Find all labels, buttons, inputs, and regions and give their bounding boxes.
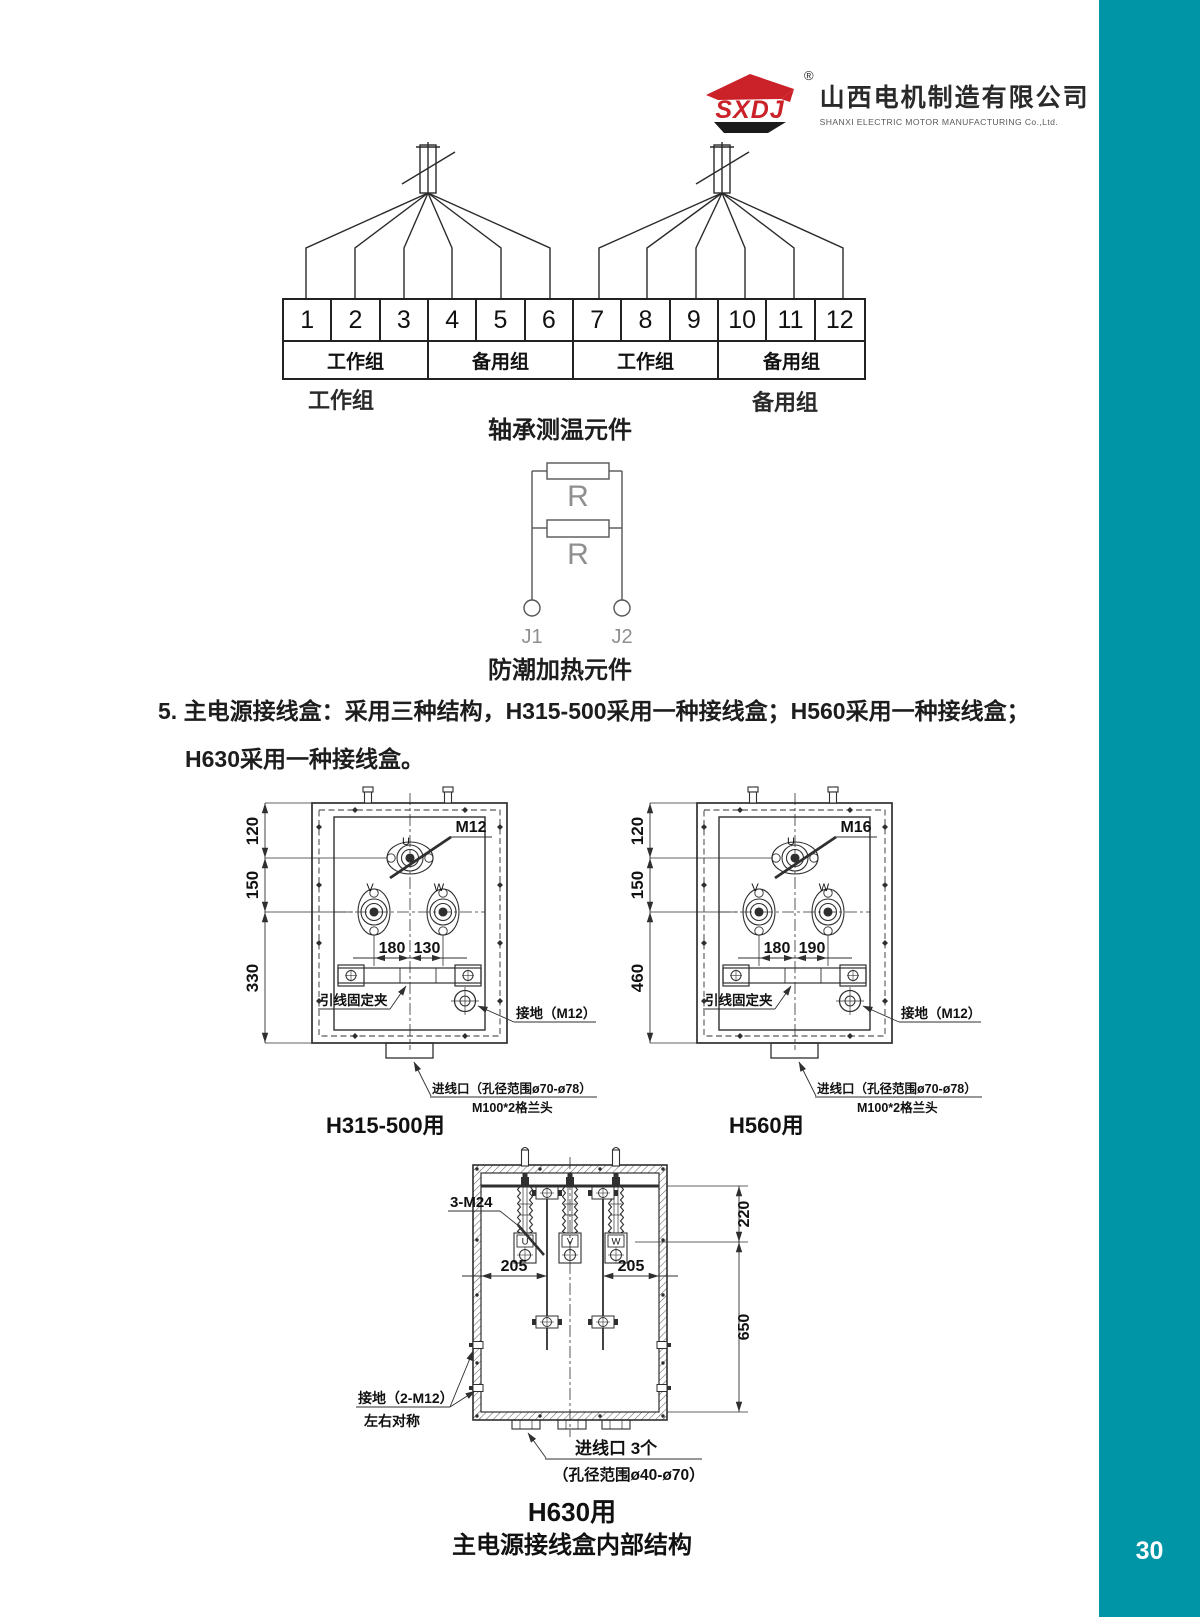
registered-mark-icon: ®	[804, 68, 814, 83]
bearing-sensor-wiring-diagram	[270, 135, 870, 301]
junction-box-labels: 120 150 330 M12 180 130 U V W 引线固定夹 接地（M…	[243, 817, 596, 1138]
clamp-label: 引线固定夹	[320, 992, 388, 1008]
terminal-cell: 12	[816, 300, 864, 340]
ground-label-line1: 接地（2-M12）	[358, 1390, 454, 1406]
logo-mark-text: SXDJ	[715, 96, 784, 124]
dim-label: 150	[243, 871, 262, 899]
heater-terminal-label: J2	[611, 626, 632, 648]
phase-label-v: V	[366, 882, 374, 894]
drawing-subcaption: 主电源接线盒内部结构	[452, 1531, 692, 1559]
side-accent-bar	[1099, 0, 1200, 1617]
dim-label: 190	[799, 940, 826, 957]
bolt-size-label: M12	[455, 819, 486, 836]
terminal-cell: 10	[719, 300, 767, 340]
group-cell: 备用组	[719, 342, 864, 378]
terminal-group-row: 工作组 备用组 工作组 备用组	[282, 340, 866, 380]
terminal-cell: 4	[429, 300, 477, 340]
drawing-caption: H630用	[528, 1497, 616, 1527]
company-name-en: SHANXI ELECTRIC MOTOR MANUFACTURING Co.,…	[820, 117, 1090, 127]
heater-terminal-label: J1	[521, 626, 542, 648]
dim-label: 460	[628, 964, 647, 992]
note-line-1: 5. 主电源接线盒：采用三种结构，H315-500采用一种接线盒；H560采用一…	[158, 692, 1030, 726]
phase-label-u: U	[787, 836, 795, 848]
entry-label: 进线口（孔径范围ø70-ø78）	[432, 1081, 592, 1096]
terminal-cell: 8	[622, 300, 670, 340]
terminal-cell: 11	[767, 300, 815, 340]
company-name-cn: 山西电机制造有限公司	[820, 78, 1090, 114]
bolt-size-label: 3-M24	[450, 1194, 493, 1211]
sensor-probes-and-wires	[306, 142, 843, 298]
entry-label-line2: （孔径范围ø40-ø70）	[553, 1465, 705, 1484]
terminal-number-row: 1 2 3 4 5 6 7 8 9 10 11 12	[282, 298, 866, 340]
phase-label-w: W	[819, 882, 830, 894]
heater-caption: 防潮加热元件	[430, 650, 690, 685]
company-logo: SXDJ ® 山西电机制造有限公司 SHANXI ELECTRIC MOTOR …	[698, 68, 1090, 134]
dim-label: 205	[618, 1258, 645, 1275]
entry-label-line1: 进线口 3个	[575, 1438, 658, 1458]
drawing-caption: H315-500用	[326, 1113, 445, 1138]
drawing-caption: H560用	[729, 1113, 804, 1138]
phase-label-w: W	[434, 882, 445, 894]
dim-label: 650	[736, 1314, 753, 1341]
terminal-cell: 5	[477, 300, 525, 340]
logo-text: 山西电机制造有限公司 SHANXI ELECTRIC MOTOR MANUFAC…	[820, 68, 1090, 127]
terminal-cell: 7	[574, 300, 622, 340]
dim-label: 330	[243, 964, 262, 992]
dim-label: 150	[628, 871, 647, 899]
terminal-cell: 6	[526, 300, 574, 340]
phase-label-u: U	[522, 1237, 529, 1248]
phase-label-w: W	[612, 1237, 621, 1248]
ground-label: 接地（M12）	[516, 1005, 596, 1021]
terminal-cell: 9	[671, 300, 719, 340]
logo-base-shape	[714, 122, 786, 133]
terminal-cell: 2	[332, 300, 380, 340]
dim-label: 220	[736, 1201, 753, 1228]
phase-label-v: V	[751, 882, 759, 894]
dim-label: 130	[414, 940, 441, 957]
left-group-label: 工作组	[308, 383, 374, 415]
junction-box-labels: 3-M24 205 205 220 650 U V W 接地（2-M12） 左右…	[358, 1194, 753, 1559]
bearing-sensor-caption: 轴承测温元件	[420, 410, 700, 445]
phase-label-v: V	[567, 1237, 574, 1248]
right-group-label: 备用组	[752, 385, 818, 417]
junction-box-h630-drawing: 3-M24 205 205 220 650 U V W 接地（2-M12） 左右…	[350, 1145, 1070, 1575]
junction-box-h315-drawing: 120 150 330 M12 180 130 U V W 引线固定夹 接地（M…	[240, 765, 635, 1160]
phase-label-u: U	[402, 836, 410, 848]
gland-label: M100*2格兰头	[472, 1100, 553, 1115]
ground-label-line2: 左右对称	[363, 1413, 420, 1429]
entry-label: 进线口（孔径范围ø70-ø78）	[817, 1081, 977, 1096]
bolt-size-label: M16	[840, 819, 871, 836]
junction-box-labels: 120 150 460 M16 180 190 U V W 引线固定夹 接地（M…	[628, 817, 981, 1138]
terminal-table: 1 2 3 4 5 6 7 8 9 10 11 12 工作组 备用组 工作组 备…	[282, 298, 866, 380]
group-cell: 备用组	[429, 342, 574, 378]
junction-box-h560-drawing: 120 150 460 M16 180 190 U V W 引线固定夹 接地（M…	[625, 765, 1025, 1160]
dim-label: 120	[243, 817, 262, 845]
manual-page: 30 SXDJ ® 山西电机制造有限公司 SHANXI ELECTRIC MOT…	[0, 0, 1200, 1617]
dim-label: 180	[379, 940, 406, 957]
resistor-label: R	[567, 538, 589, 571]
terminal-cell: 3	[381, 300, 429, 340]
ground-label: 接地（M12）	[901, 1005, 981, 1021]
gland-label: M100*2格兰头	[857, 1100, 938, 1115]
resistor-label: R	[567, 480, 589, 513]
heater-circuit-diagram: R R J1 J2	[498, 448, 728, 663]
logo-mark: SXDJ	[698, 68, 802, 134]
group-cell: 工作组	[574, 342, 719, 378]
heater-circuit-labels: R R J1 J2	[521, 480, 632, 648]
dim-label: 120	[628, 817, 647, 845]
dim-label: 180	[764, 940, 791, 957]
group-cell: 工作组	[284, 342, 429, 378]
terminal-cell: 1	[284, 300, 332, 340]
dim-label: 205	[501, 1258, 528, 1275]
clamp-label: 引线固定夹	[705, 992, 773, 1008]
page-number: 30	[1099, 1537, 1200, 1566]
